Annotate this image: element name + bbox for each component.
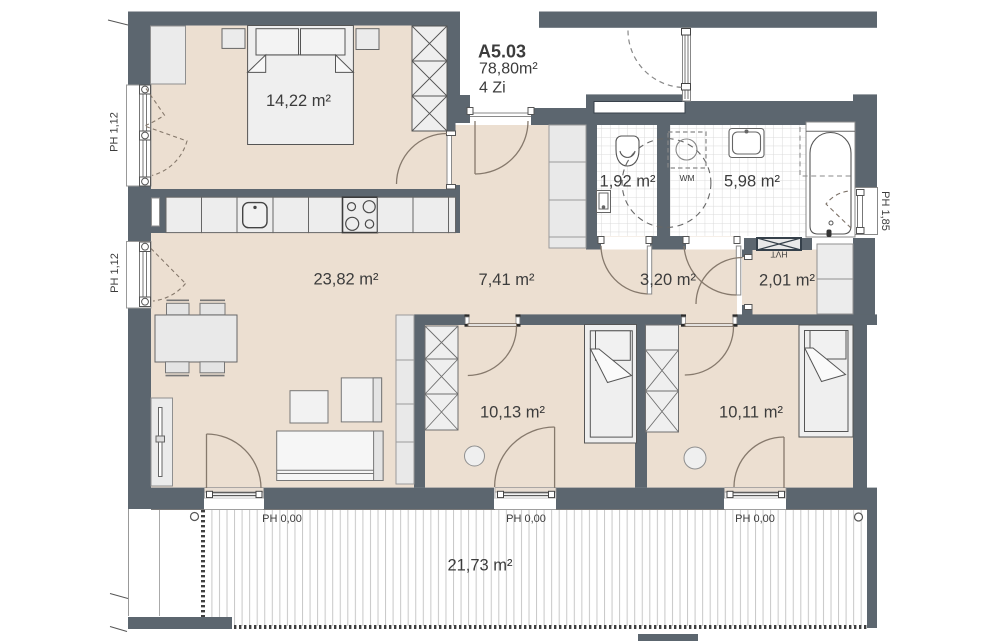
svg-text:PH 1,85: PH 1,85 (879, 191, 891, 231)
svg-text:7,41 m²: 7,41 m² (479, 271, 535, 289)
svg-text:78,80m²: 78,80m² (479, 61, 538, 78)
svg-text:2,01 m²: 2,01 m² (759, 272, 815, 290)
svg-text:PH 0,00: PH 0,00 (262, 513, 302, 525)
svg-text:23,82 m²: 23,82 m² (313, 271, 379, 289)
svg-text:WM: WM (679, 173, 694, 183)
svg-text:HVT: HVT (771, 250, 788, 260)
svg-text:10,13 m²: 10,13 m² (480, 404, 546, 422)
svg-text:3,20 m²: 3,20 m² (640, 271, 696, 289)
svg-text:10,11 m²: 10,11 m² (719, 404, 783, 422)
svg-text:1,92 m²: 1,92 m² (600, 173, 656, 191)
svg-text:PH 1,12: PH 1,12 (109, 112, 121, 152)
svg-text:21,73 m²: 21,73 m² (447, 557, 513, 575)
svg-text:4 Zi: 4 Zi (479, 80, 506, 97)
svg-text:PH 0,00: PH 0,00 (735, 513, 775, 525)
svg-text:14,22 m²: 14,22 m² (266, 92, 332, 110)
svg-text:A5.03: A5.03 (478, 42, 526, 62)
svg-text:PH 1,12: PH 1,12 (109, 253, 121, 293)
svg-text:PH 0,00: PH 0,00 (506, 513, 546, 525)
svg-text:5,98 m²: 5,98 m² (724, 173, 780, 191)
